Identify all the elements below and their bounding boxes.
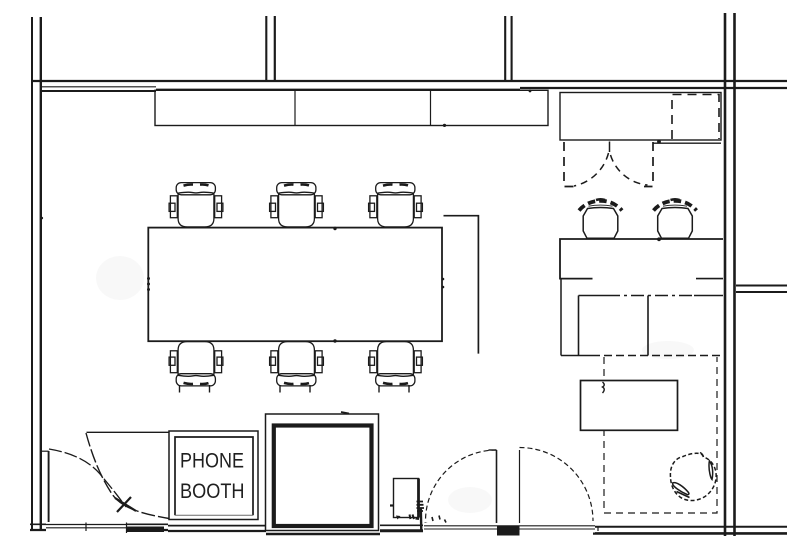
svg-text:PHONE: PHONE: [180, 450, 244, 473]
svg-text:BOOTH: BOOTH: [180, 480, 245, 503]
